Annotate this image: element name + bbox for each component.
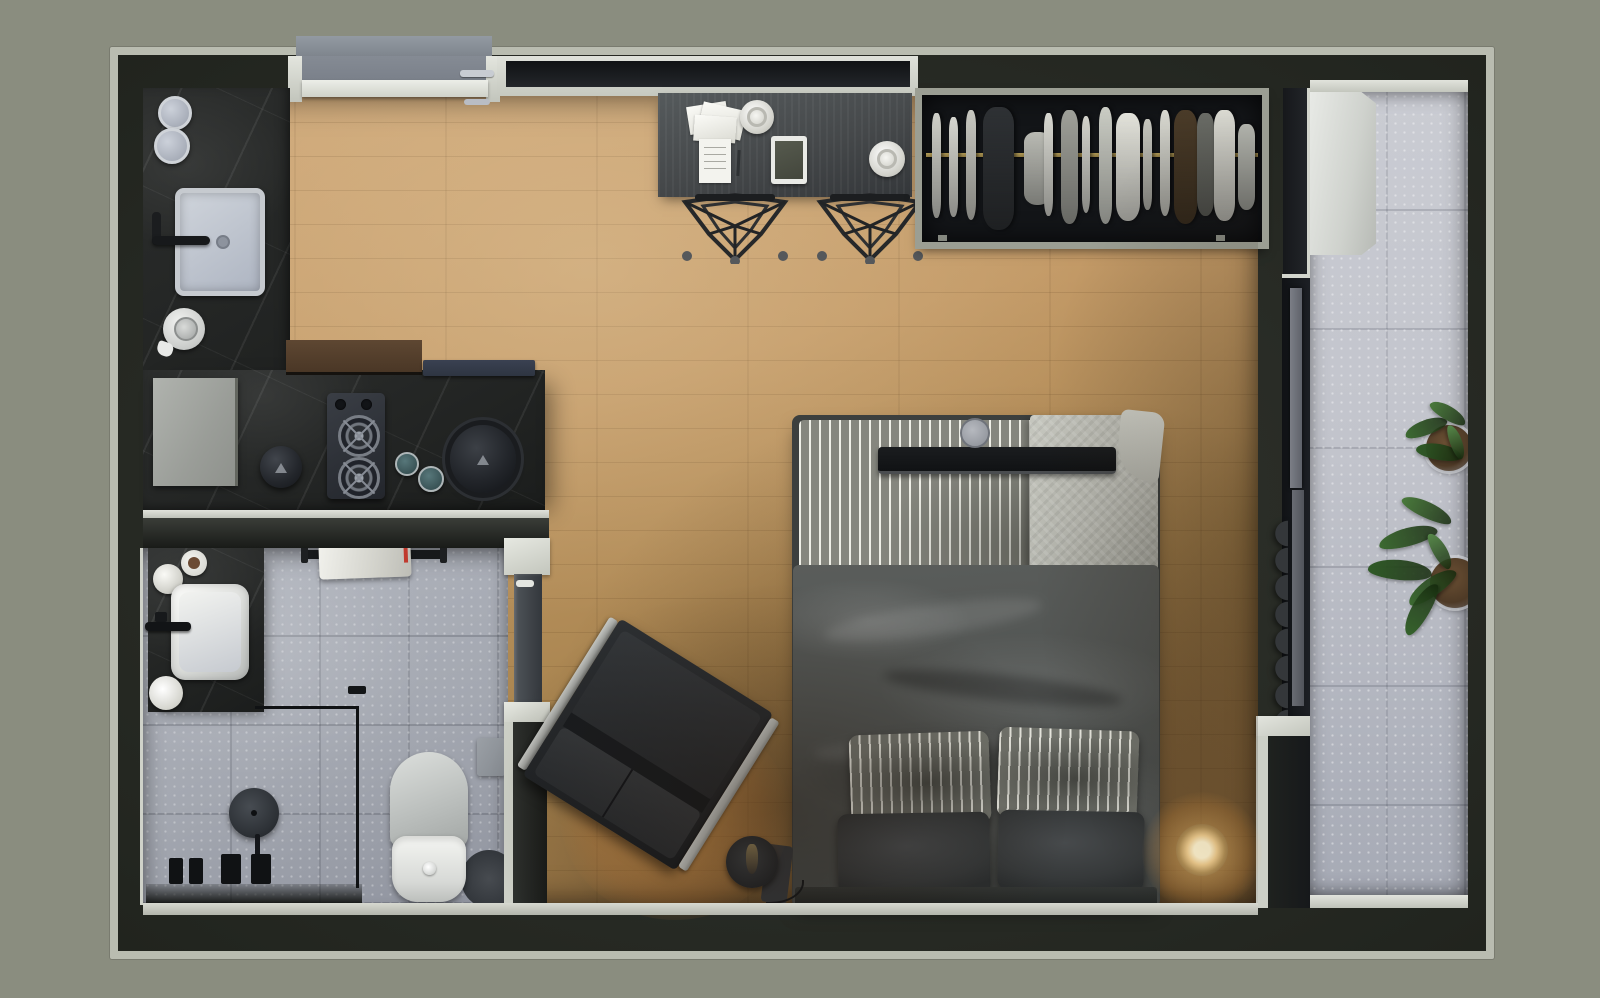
kettle-lid (174, 317, 198, 341)
duvet-wrinkle (822, 590, 1044, 650)
drinking-glass (395, 452, 419, 476)
wardrobe-foot (1216, 235, 1225, 241)
kitchen-canister (158, 96, 192, 130)
plant-leaf (1367, 557, 1432, 583)
disc-glyph (477, 455, 489, 465)
sliding-glass-panel[interactable] (1290, 288, 1302, 488)
coffee-saucer (740, 100, 774, 134)
kitchen-faucet-spout (152, 236, 210, 245)
bathroom-door[interactable] (514, 574, 542, 704)
disc-glyph (275, 463, 287, 473)
drinking-glass (418, 466, 444, 492)
cooktop-knob[interactable] (335, 399, 346, 410)
kitchen-navy-shelf (423, 360, 535, 376)
garment (1116, 113, 1140, 222)
notepad (699, 139, 731, 183)
table-lamp[interactable] (1176, 824, 1228, 876)
garment (1214, 110, 1234, 222)
round-gadget (960, 418, 990, 448)
bedroom-balcony-wall-cap (1256, 736, 1268, 908)
flush-button[interactable] (423, 862, 436, 875)
double-bed (792, 415, 1160, 908)
coffee-saucer (869, 141, 905, 177)
dark-pillow (837, 812, 990, 897)
striped-pillow (996, 727, 1139, 822)
wire-stool[interactable] (673, 192, 797, 264)
plant-leaf (1399, 491, 1455, 528)
bathroom-bowl (149, 676, 183, 710)
kitchen-canister (154, 128, 190, 164)
tablet-screen (775, 141, 803, 179)
open-wardrobe (915, 88, 1269, 249)
balcony-top-cap (1310, 80, 1468, 92)
entry-door-handle-inside[interactable] (464, 99, 490, 105)
floor-lamp-cone (746, 844, 758, 874)
coffee (188, 557, 200, 569)
coffee-cup (747, 107, 767, 127)
entry-landing-concrete (296, 36, 492, 56)
cooktop (327, 393, 385, 499)
cooktop-knob[interactable] (361, 399, 372, 410)
garment (1174, 110, 1198, 225)
window-glass (506, 61, 910, 87)
shower-valve[interactable] (348, 686, 366, 694)
shower-floor-shadow (146, 884, 362, 905)
garment (1143, 119, 1152, 210)
bathroom-faucet (145, 622, 191, 631)
balcony (1310, 92, 1468, 895)
toilet-tank (390, 752, 468, 848)
floorplan-render (0, 0, 1600, 998)
garment (983, 107, 1014, 230)
toilet-paper-holder (477, 738, 505, 776)
garment (1197, 113, 1214, 216)
garment (1099, 107, 1113, 225)
entry-door[interactable] (302, 80, 488, 97)
balcony-bench (1310, 92, 1376, 255)
garment (1061, 110, 1078, 225)
towel (318, 548, 411, 580)
kitchen-appliance (153, 378, 238, 486)
entry-door-handle-outside[interactable] (460, 70, 494, 77)
bottom-wall-cap (143, 903, 1258, 915)
burner-front (338, 415, 380, 457)
balcony-bottom-cap (1310, 895, 1468, 908)
wire-stool[interactable] (808, 192, 932, 264)
coffee-cup (877, 149, 897, 169)
wardrobe-foot (938, 235, 947, 241)
coffee-cup (181, 550, 207, 576)
dark-pillow (997, 810, 1144, 893)
bathroom-faucet-handle (155, 612, 167, 622)
garment (932, 113, 941, 219)
sink-basin (179, 592, 241, 672)
slider-end-post (1256, 716, 1316, 736)
shower-cross-handle[interactable] (169, 858, 183, 884)
garment (949, 117, 958, 217)
shower-cross-handle[interactable] (189, 858, 203, 884)
garment (1160, 110, 1170, 216)
burner-rear (338, 457, 380, 499)
sink-drain (216, 235, 230, 249)
garment (1238, 124, 1255, 209)
shower-control[interactable] (221, 854, 241, 884)
floor-lamp[interactable] (726, 836, 780, 892)
towel-tag (404, 548, 409, 563)
shower-control[interactable] (251, 854, 271, 884)
kettle (157, 308, 205, 360)
sliding-glass-panel[interactable] (1292, 490, 1304, 706)
shower-nozzle (251, 810, 257, 816)
bath-wall-block-bottom (504, 702, 550, 723)
bedroom-balcony-wall (1268, 736, 1316, 908)
bed-tray (878, 447, 1116, 474)
bathroom-door-handle[interactable] (516, 580, 534, 587)
toilet-rug (461, 850, 508, 905)
kitchen-wood-shelf (286, 340, 422, 375)
kitchen-bath-wall-cap (143, 510, 549, 518)
garment (1044, 113, 1053, 216)
shower-head (229, 788, 279, 838)
serving-disc-small (260, 446, 302, 488)
garment (1082, 116, 1091, 213)
throw-fold (1114, 409, 1165, 483)
shower-glass-horizontal (255, 706, 359, 709)
garment (966, 110, 976, 220)
shower-glass-vertical (356, 706, 359, 888)
duvet-wrinkle (882, 663, 1123, 714)
bathroom-sink (171, 584, 249, 680)
bath-wall-lower-cap (504, 722, 513, 908)
herringbone-throw (1030, 415, 1158, 573)
serving-disc-large (450, 425, 516, 493)
bathroom (143, 548, 508, 905)
kitchen-bath-wall (143, 518, 549, 548)
toilet (392, 836, 466, 902)
tablet (771, 136, 807, 184)
entry-jamb-left (288, 56, 302, 102)
bath-wall-block-top (504, 538, 550, 575)
